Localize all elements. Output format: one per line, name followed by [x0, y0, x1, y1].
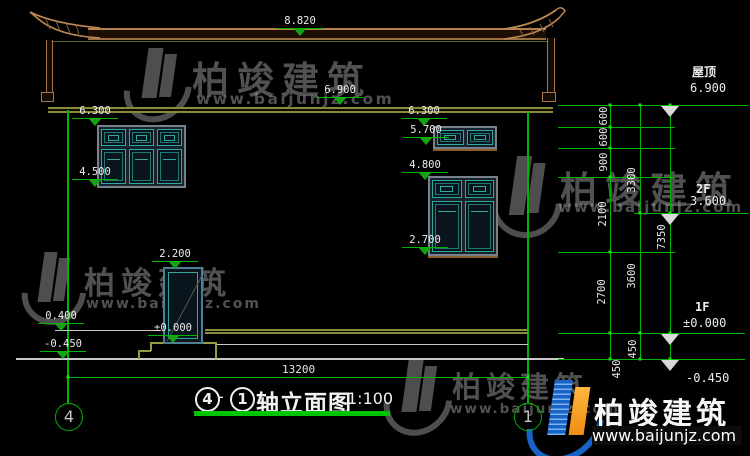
level-value: 3.600: [690, 194, 726, 208]
level-marker: 4.800: [402, 159, 448, 180]
wall-bottom-line: [215, 344, 528, 345]
level-marker: 5.700: [403, 124, 449, 145]
title-axis-right: 1: [230, 387, 255, 412]
dim-label: 2700: [596, 279, 608, 304]
left-eave-post: [46, 40, 53, 93]
window-pane: [432, 180, 462, 198]
drawing-scale: 1:100: [347, 389, 393, 408]
watermark-logo: [126, 48, 188, 108]
level-marker: 0.400: [38, 310, 84, 331]
grid-bubble-4: 4: [55, 403, 83, 431]
dim-chain-line: [640, 105, 641, 359]
window-pane: [101, 129, 126, 146]
grid-bubble-1: 1: [514, 403, 542, 431]
level-ext-line: [558, 105, 748, 106]
step-line: [215, 342, 217, 359]
level-marker: 6.300: [401, 105, 447, 126]
dim-line-overall: [68, 377, 528, 378]
dim-chain-line: [670, 105, 671, 359]
dim-label: 600: [598, 128, 610, 147]
dim-label: 450: [627, 340, 639, 359]
level-marker: 8.820: [277, 15, 323, 36]
floor-line: [205, 329, 528, 331]
right-eave-bracket: [542, 92, 556, 102]
window-pane: [129, 129, 154, 146]
wall-top-band: [48, 107, 553, 113]
window-pane: [465, 180, 495, 198]
left-eave-bracket: [41, 92, 54, 102]
level-value: 6.900: [690, 81, 726, 95]
level-label: 1F: [695, 300, 709, 314]
dim-label: 7350: [656, 224, 668, 249]
dim-label: 3300: [626, 167, 638, 192]
dim-label: 2100: [597, 201, 609, 226]
level-value: -0.450: [686, 371, 729, 385]
level-marker: 6.300: [72, 105, 118, 126]
floor-line: [205, 332, 528, 334]
roof-soffit-line: [48, 41, 550, 42]
dim-label: 900: [598, 153, 610, 172]
level-marker: 2.700: [402, 234, 448, 255]
watermark-logo: [24, 252, 80, 312]
window-pane: [157, 129, 182, 146]
level-ext-line: [558, 359, 745, 360]
window-pane: [157, 149, 182, 184]
level-value: ±0.000: [683, 316, 726, 330]
dim-label: 3600: [626, 263, 638, 288]
step-line: [138, 350, 151, 352]
brand-url: www.baijunjz.com: [592, 426, 742, 445]
right-eave-tip: [504, 6, 568, 42]
level-ext-line: [558, 148, 675, 149]
watermark-url: www.baijunjz.com: [196, 90, 394, 108]
window-pane: [467, 130, 494, 145]
level-label: 屋顶: [692, 63, 716, 80]
dim-label: 450: [611, 360, 623, 379]
dim-chain-line: [610, 105, 611, 359]
right-eave-post: [547, 38, 555, 93]
cad-elevation-drawing: 柏竣建筑 www.baijunjz.com 柏竣建筑 www.baijunjz.…: [0, 0, 750, 456]
level-ext-line: [558, 252, 675, 253]
watermark-logo: [386, 360, 448, 422]
title-axis-left: 4: [195, 387, 220, 412]
left-eave-tip: [20, 10, 100, 44]
window-pane: [465, 201, 495, 252]
window-sill: [428, 256, 498, 258]
title-separator: -: [218, 387, 224, 406]
dim-label-overall: 13200: [282, 363, 315, 376]
ground-line: [16, 358, 564, 360]
title-underline: [194, 411, 390, 416]
level-marker: 2.200: [152, 248, 198, 269]
level-marker: 6.900: [317, 84, 363, 105]
step-line: [138, 350, 140, 359]
level-ext-line: [634, 213, 748, 214]
level-ext-line: [558, 177, 675, 178]
window-pane: [129, 149, 154, 184]
level-marker: -0.450: [40, 338, 86, 359]
window-sill: [433, 149, 497, 151]
dim-label: 600: [598, 107, 610, 126]
level-ext-line: [558, 127, 675, 128]
level-ext-line: [558, 333, 745, 334]
level-marker: 4.500: [72, 166, 118, 187]
level-marker: ±0.000: [148, 322, 198, 343]
watermark-logo: [494, 156, 556, 226]
